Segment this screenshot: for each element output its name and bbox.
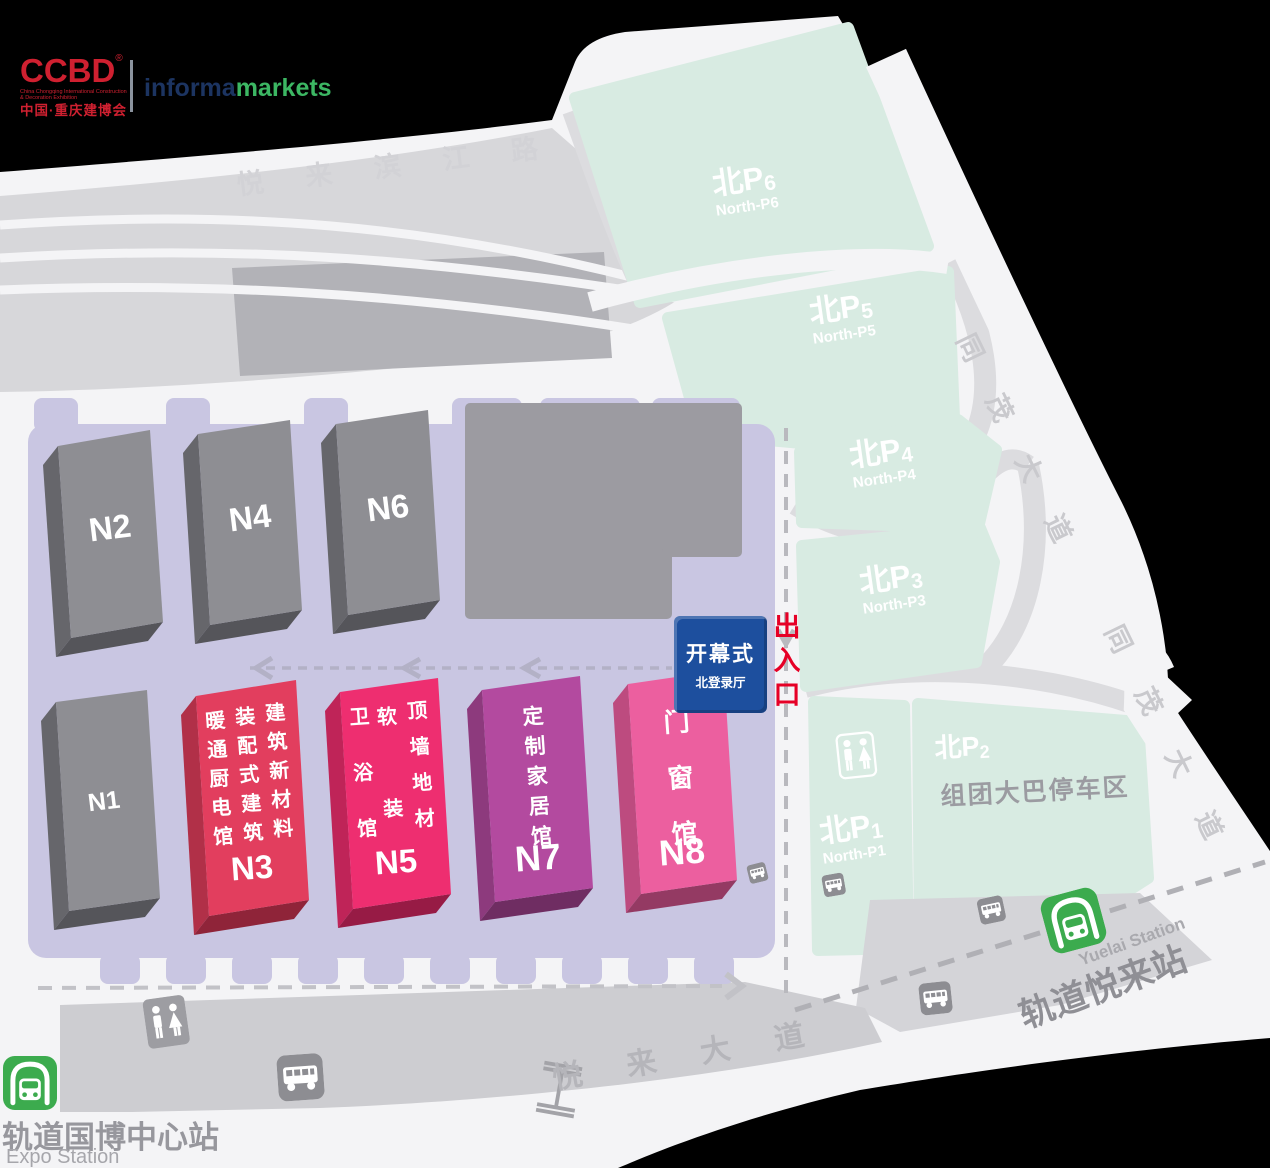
hall-label-n6: N6 xyxy=(365,487,412,530)
opening-ceremony-title: 开幕式 xyxy=(686,638,755,668)
hall-label-n4: N4 xyxy=(227,497,274,540)
parking-label-p2: 北P2 xyxy=(934,733,990,764)
entrance-exit-label: 出入口 xyxy=(771,612,798,714)
hall-label-n5: N5 xyxy=(374,842,419,883)
informa-markets-logo: informamarkets xyxy=(144,74,332,103)
hall-label-n3: N3 xyxy=(230,848,275,889)
ccbd-logo-cn: 中国·重庆建博会 xyxy=(20,104,128,118)
venue-map: CCBD® China Chongqing International Cons… xyxy=(0,0,1270,1168)
hall-label-n7: N7 xyxy=(514,835,563,880)
ccbd-logo-subtitle: China Chongqing International Constructi… xyxy=(20,89,128,101)
bus-icon-3 xyxy=(976,895,1007,926)
parking-label-p6: 北P6 North-P6 xyxy=(710,160,780,219)
ccbd-logo-text: CCBD xyxy=(20,52,115,89)
metro-icon-expo xyxy=(3,1056,57,1110)
opening-ceremony-box: 开幕式 北登录厅 xyxy=(674,616,767,713)
expo-station-en: Expo Station xyxy=(6,1146,119,1168)
logo-divider xyxy=(130,60,133,112)
hall-label-n2: N2 xyxy=(87,507,134,550)
bus-icon-4 xyxy=(918,981,953,1016)
parking-label-p4: 北P4 North-P4 xyxy=(847,432,917,491)
hall-label-n8: N8 xyxy=(658,829,707,874)
restroom-icon-sidewalk xyxy=(142,994,190,1049)
bus-icon-2 xyxy=(821,872,846,897)
parking-label-p1: 北P1 North-P1 xyxy=(817,808,887,867)
bus-icon-5 xyxy=(276,1053,325,1102)
ccbd-logo: CCBD® China Chongqing International Cons… xyxy=(20,54,128,118)
parking-label-p5: 北P5 North-P5 xyxy=(807,288,877,347)
hall-label-n1: N1 xyxy=(86,786,121,819)
parking-label-p3: 北P3 North-P3 xyxy=(857,558,927,617)
north-registration-hall: 北登录厅 xyxy=(695,672,745,691)
